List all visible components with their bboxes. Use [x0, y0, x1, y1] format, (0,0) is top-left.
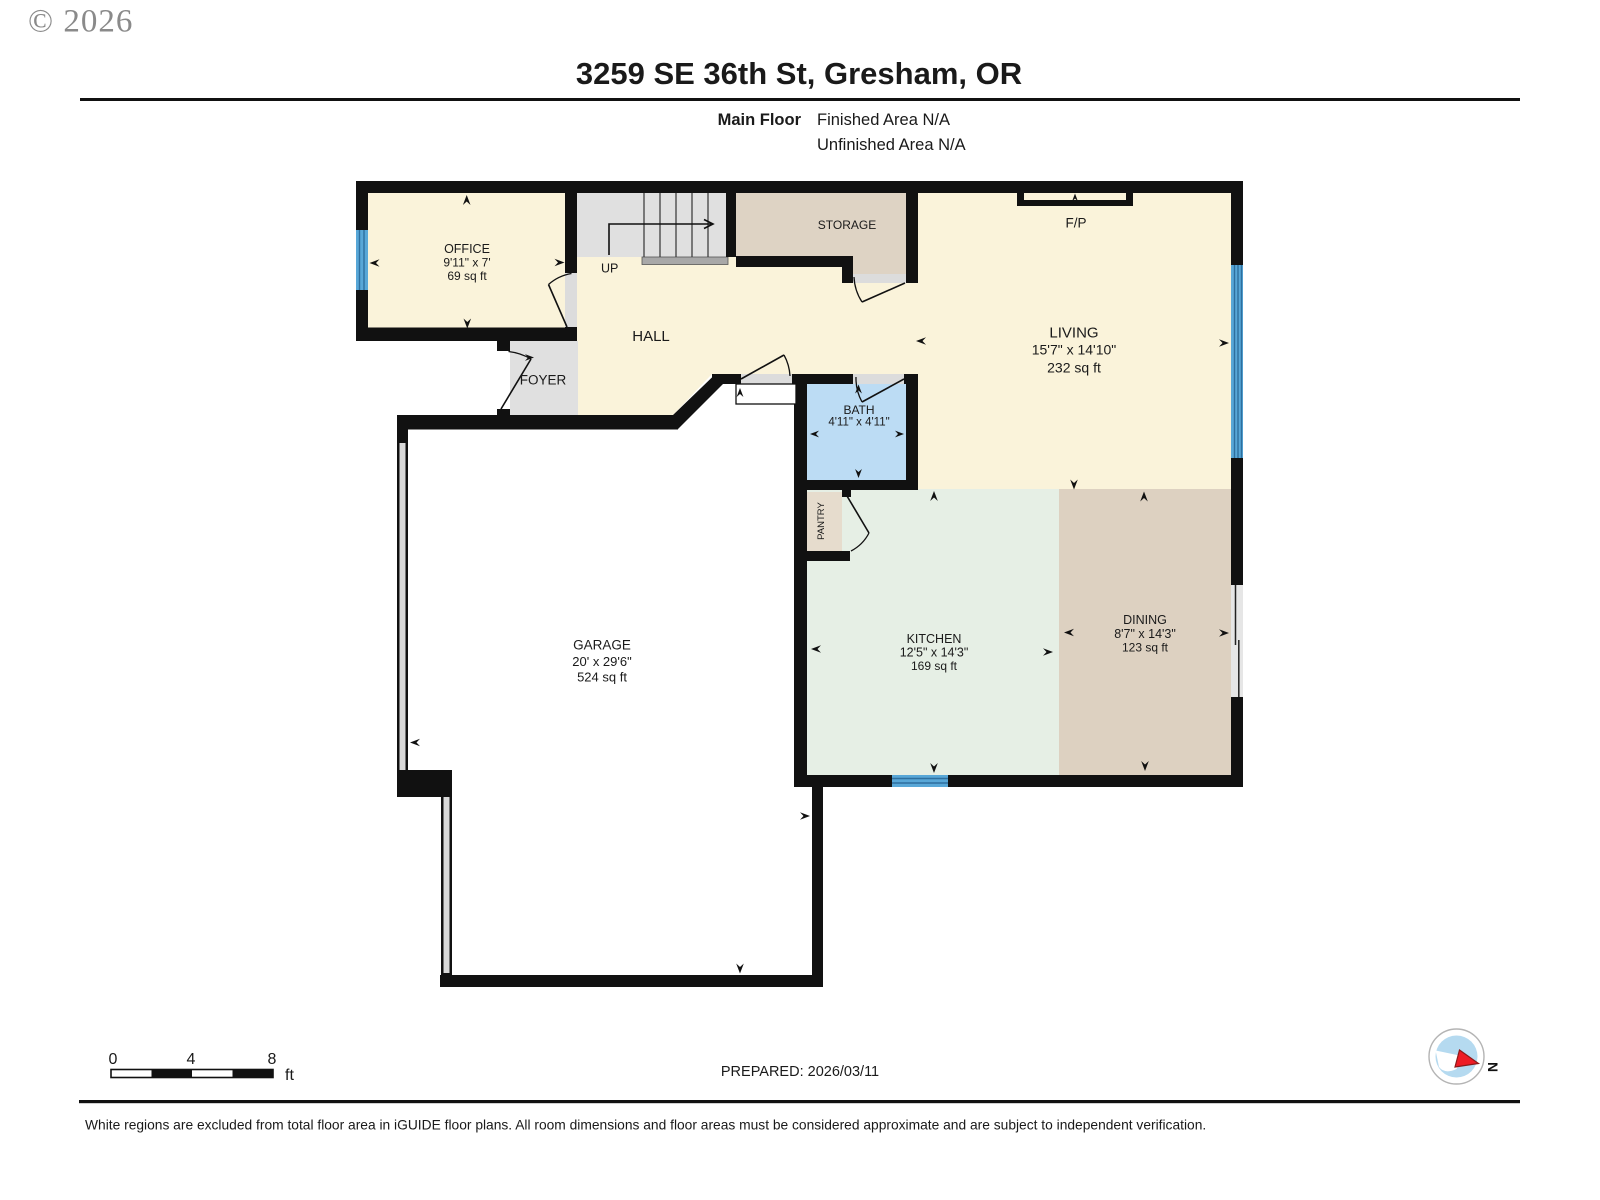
svg-text:Main Floor: Main Floor [718, 111, 802, 129]
svg-text:White regions are excluded fro: White regions are excluded from total fl… [85, 1118, 1206, 1133]
svg-text:20' x 29'6": 20' x 29'6" [572, 654, 632, 669]
svg-text:232 sq ft: 232 sq ft [1047, 360, 1101, 376]
svg-text:N: N [1485, 1062, 1501, 1072]
svg-text:DINING: DINING [1123, 613, 1167, 627]
svg-text:69 sq ft: 69 sq ft [447, 269, 487, 283]
svg-text:4'11" x 4'11": 4'11" x 4'11" [828, 417, 889, 429]
svg-text:F/P: F/P [1065, 216, 1086, 231]
svg-text:3259 SE 36th St, Gresham, OR: 3259 SE 36th St, Gresham, OR [576, 56, 1022, 91]
svg-text:0: 0 [109, 1051, 118, 1068]
svg-text:8: 8 [268, 1051, 277, 1068]
svg-text:UP: UP [601, 262, 618, 276]
svg-text:Unfinished Area N/A: Unfinished Area N/A [817, 136, 966, 154]
svg-text:HALL: HALL [632, 328, 670, 345]
svg-text:ft: ft [285, 1067, 294, 1084]
svg-text:4: 4 [187, 1051, 196, 1068]
svg-text:15'7" x 14'10": 15'7" x 14'10" [1032, 342, 1117, 358]
svg-text:524 sq ft: 524 sq ft [577, 670, 627, 685]
svg-text:9'11" x 7': 9'11" x 7' [443, 256, 490, 270]
svg-text:© 2026: © 2026 [28, 4, 133, 40]
svg-text:123 sq ft: 123 sq ft [1122, 641, 1169, 655]
svg-text:169 sq ft: 169 sq ft [911, 659, 958, 673]
svg-text:Finished Area N/A: Finished Area N/A [817, 111, 950, 129]
svg-text:8'7" x 14'3": 8'7" x 14'3" [1114, 627, 1176, 641]
svg-text:BATH: BATH [843, 403, 874, 417]
svg-text:STORAGE: STORAGE [818, 218, 876, 232]
svg-text:KITCHEN: KITCHEN [907, 632, 962, 646]
svg-text:LIVING: LIVING [1049, 325, 1098, 342]
svg-text:PANTRY: PANTRY [816, 502, 827, 540]
svg-text:GARAGE: GARAGE [573, 638, 631, 653]
svg-text:PREPARED: 2026/03/11: PREPARED: 2026/03/11 [721, 1064, 879, 1080]
svg-text:OFFICE: OFFICE [444, 242, 490, 256]
svg-text:12'5" x 14'3": 12'5" x 14'3" [900, 646, 969, 660]
svg-text:FOYER: FOYER [520, 373, 567, 388]
